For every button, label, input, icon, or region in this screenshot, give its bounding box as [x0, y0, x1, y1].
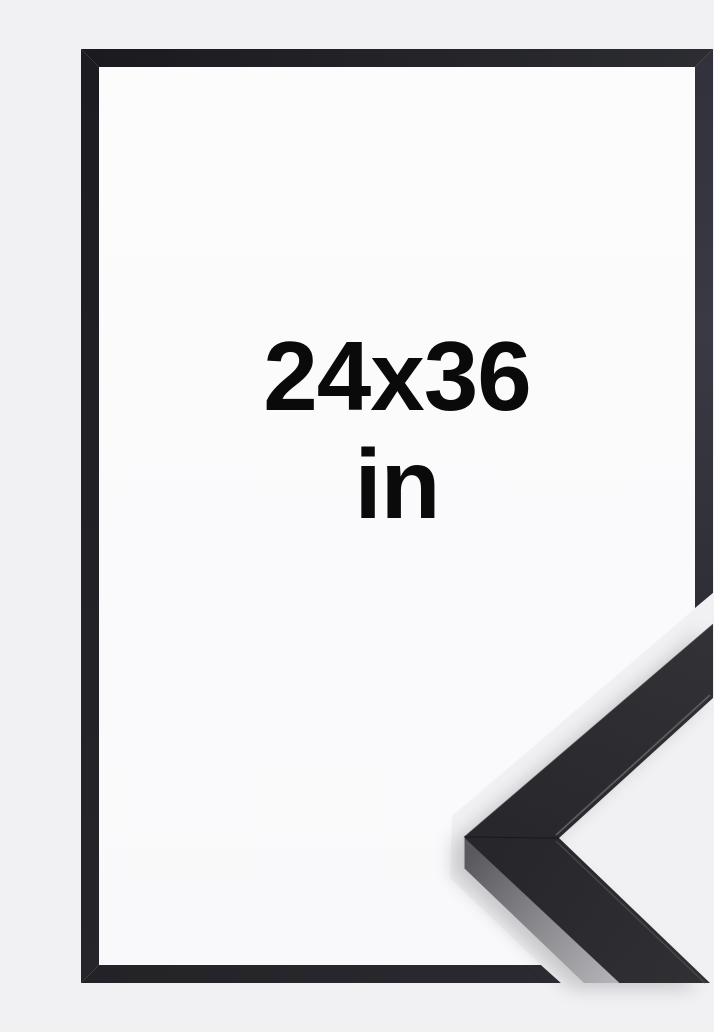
frame-border-bottom	[81, 965, 561, 983]
size-unit-text: in	[40, 430, 714, 538]
frame-border-top	[81, 49, 713, 67]
size-dimensions-text: 24x36	[40, 322, 714, 430]
size-label: 24x36 in	[40, 322, 714, 538]
product-image: 24x36 in	[40, 16, 714, 1016]
